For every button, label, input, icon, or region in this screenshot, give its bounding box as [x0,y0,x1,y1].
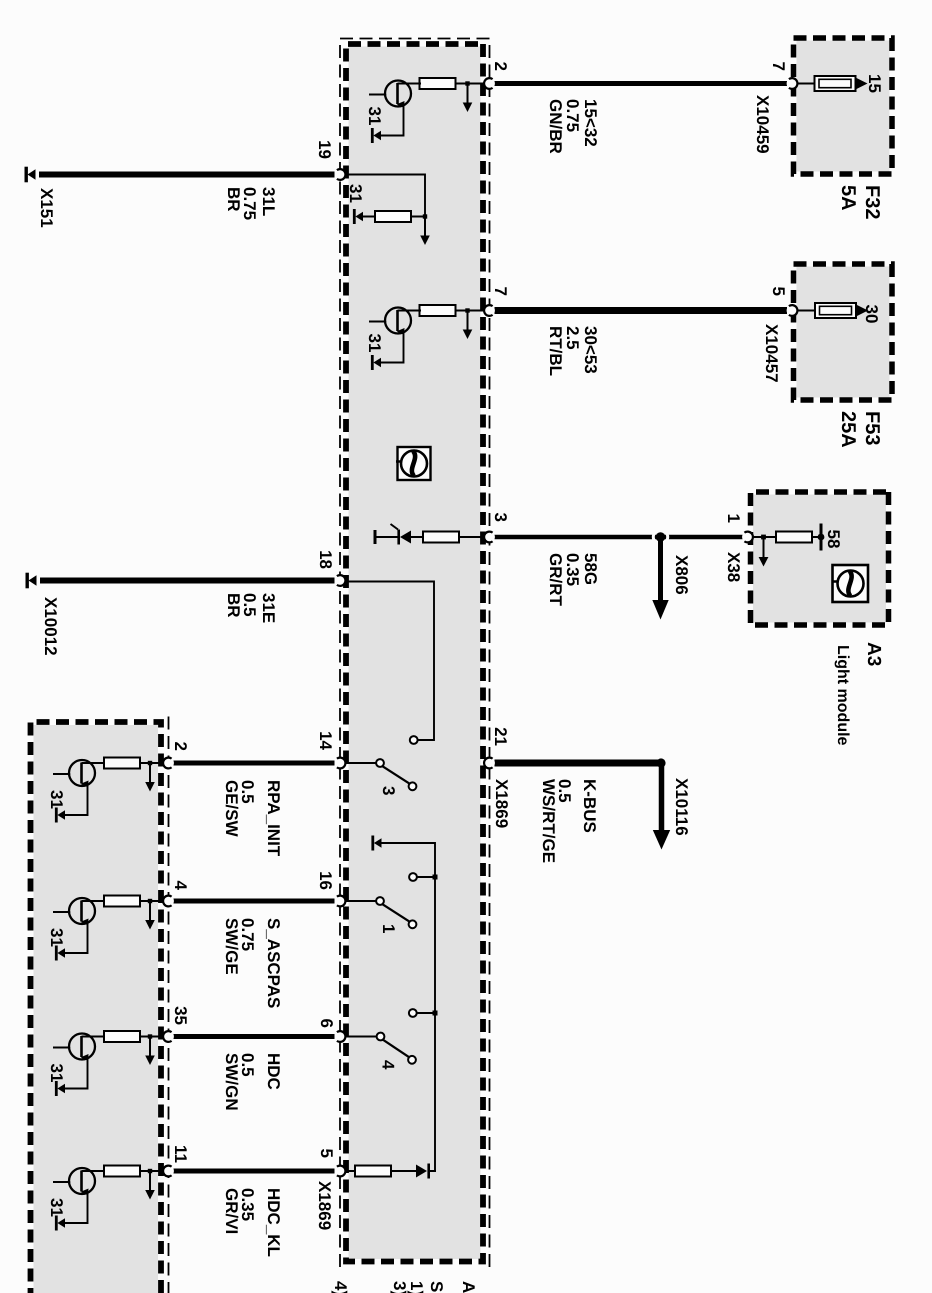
svg-text:5A: 5A [837,185,859,211]
svg-text:7: 7 [491,287,510,296]
svg-text:4: 4 [379,1060,398,1070]
svg-text:21: 21 [491,727,510,746]
svg-text:25A: 25A [837,411,859,448]
svg-text:14: 14 [316,731,335,750]
svg-text:HDC_KL: HDC_KL [264,1188,283,1257]
svg-text:A3: A3 [863,642,884,666]
svg-text:X38: X38 [724,552,743,582]
svg-text:GR/VI: GR/VI [222,1188,241,1234]
svg-text:3: 3 [379,786,398,795]
svg-text:X151: X151 [37,188,56,228]
svg-text:X806: X806 [672,555,691,595]
svg-text:3): 3) [390,1281,409,1293]
svg-text:F53: F53 [861,411,883,445]
svg-text:30: 30 [862,305,881,324]
svg-text:2.5: 2.5 [563,326,582,350]
svg-text:31: 31 [47,1064,66,1083]
svg-text:58G: 58G [581,553,600,585]
svg-text:5: 5 [769,287,788,296]
svg-text:35: 35 [171,1006,190,1025]
svg-text:X10116: X10116 [672,778,691,836]
svg-text:11: 11 [171,1145,190,1163]
svg-text:SW/GE: SW/GE [222,918,241,975]
svg-text:16: 16 [316,871,335,890]
svg-text:S_ASCPAS: S_ASCPAS [264,918,283,1008]
svg-text:0.35: 0.35 [563,553,582,586]
svg-text:2: 2 [171,742,190,751]
svg-text:4): 4) [331,1281,350,1293]
svg-text:GE/SW: GE/SW [222,780,241,838]
svg-text:1: 1 [724,514,743,523]
svg-text:31: 31 [346,184,365,203]
svg-text:X1869: X1869 [492,779,511,828]
svg-text:0.75: 0.75 [563,99,582,132]
svg-text:X10012: X10012 [41,597,60,656]
svg-text:RPA_INIT: RPA_INIT [264,780,283,857]
svg-text:WS/RT/GE: WS/RT/GE [539,779,558,863]
svg-text:18: 18 [316,550,335,569]
svg-text:5: 5 [317,1149,336,1158]
svg-text:31E: 31E [259,593,278,623]
svg-text:7: 7 [769,62,788,71]
svg-text:SW/GN: SW/GN [222,1053,241,1111]
svg-text:A: A [459,1281,478,1293]
svg-text:BR: BR [224,187,243,212]
svg-text:31: 31 [47,790,66,809]
svg-text:4: 4 [171,881,190,891]
svg-text:31: 31 [365,107,384,126]
svg-text:6: 6 [317,1019,336,1028]
svg-text:K-BUS: K-BUS [580,779,599,833]
svg-text:31: 31 [365,334,384,353]
svg-text:19: 19 [315,140,334,159]
svg-text:S: S [427,1281,446,1292]
svg-text:HDC: HDC [264,1053,283,1090]
svg-text:31: 31 [47,928,66,947]
svg-text:1): 1) [407,1281,426,1293]
svg-text:31L: 31L [259,187,278,216]
svg-text:X10457: X10457 [762,324,781,383]
svg-text:31: 31 [47,1198,66,1217]
svg-text:15: 15 [865,74,884,93]
svg-text:X1869: X1869 [315,1181,334,1230]
svg-text:F32: F32 [861,185,883,219]
svg-text:30<53: 30<53 [581,326,600,374]
svg-text:GN/BR: GN/BR [546,99,565,154]
svg-text:X10459: X10459 [753,95,772,154]
svg-text:BR: BR [224,593,243,618]
svg-text:3: 3 [491,513,510,522]
svg-text:58: 58 [824,530,843,549]
svg-text:GR/RT: GR/RT [546,553,565,607]
svg-text:RT/BL: RT/BL [546,326,565,376]
svg-text:1: 1 [379,924,398,933]
svg-text:15<32: 15<32 [581,99,600,147]
svg-text:2: 2 [491,62,510,71]
svg-text:Light module: Light module [834,645,851,746]
